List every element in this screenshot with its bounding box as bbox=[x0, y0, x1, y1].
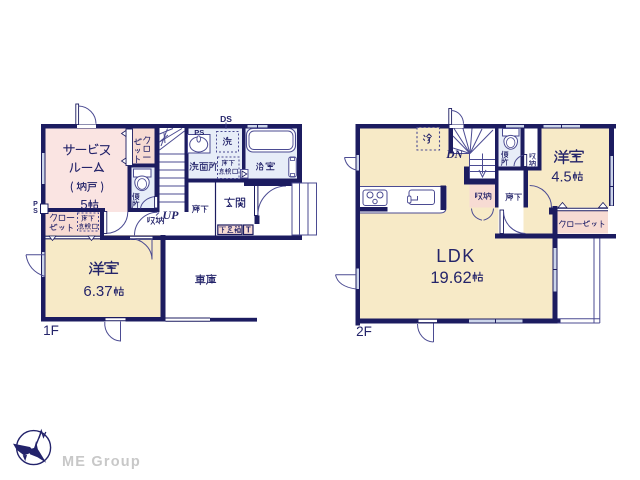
svg-text:ME Group: ME Group bbox=[62, 454, 141, 470]
svg-text:T: T bbox=[246, 226, 251, 235]
svg-text:LDK: LDK bbox=[436, 246, 476, 266]
svg-text:UP: UP bbox=[163, 208, 180, 222]
svg-text:DN: DN bbox=[445, 149, 463, 161]
svg-text:4.5: 4.5 bbox=[551, 170, 571, 186]
svg-text:PS: PS bbox=[194, 128, 204, 137]
svg-text:6.37: 6.37 bbox=[83, 283, 112, 300]
svg-text:S: S bbox=[33, 208, 38, 215]
svg-text:P: P bbox=[33, 201, 38, 208]
svg-text:1F: 1F bbox=[43, 323, 59, 338]
svg-text:19.62: 19.62 bbox=[430, 269, 471, 287]
svg-text:2F: 2F bbox=[356, 324, 372, 339]
svg-text:5: 5 bbox=[80, 197, 87, 212]
